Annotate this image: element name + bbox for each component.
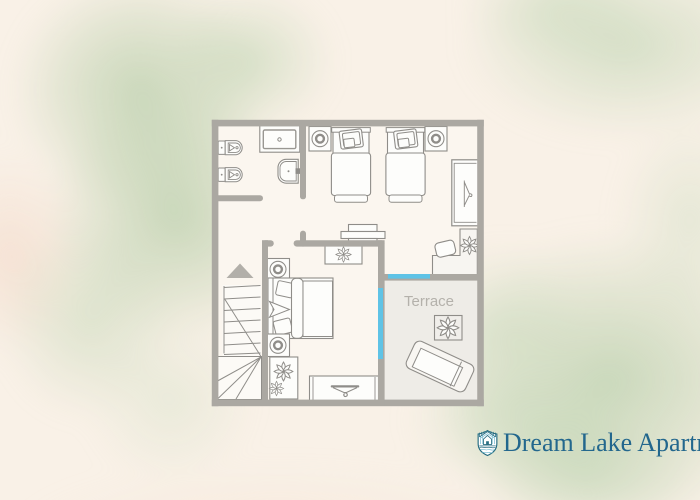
svg-text:Terrace: Terrace bbox=[404, 293, 454, 310]
